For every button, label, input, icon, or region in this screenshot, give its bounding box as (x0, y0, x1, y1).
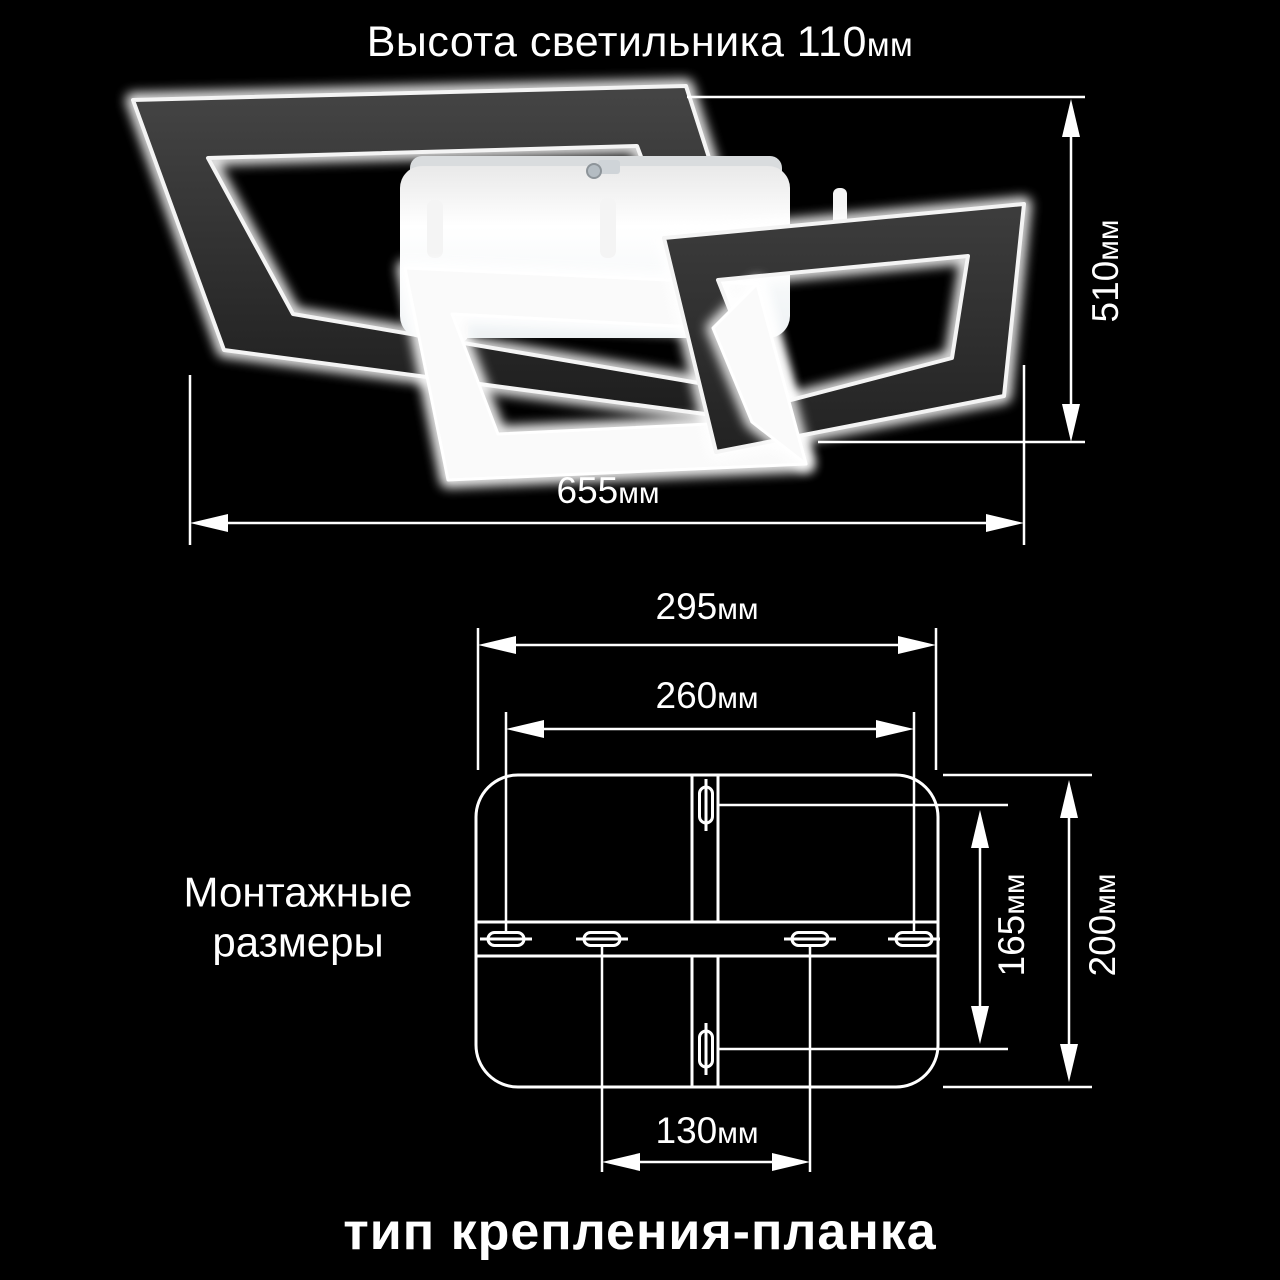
mount-screw (587, 164, 601, 178)
mount-type-caption: тип крепления-планка (0, 1202, 1280, 1262)
mounting-plate-drawing (476, 775, 940, 1087)
dim-200-label: 200мм (1082, 874, 1124, 977)
chandelier-illustration (133, 86, 1024, 480)
center-slots (700, 779, 713, 1075)
dim-260-label: 260мм (656, 675, 759, 717)
bar-slots (480, 933, 940, 946)
mounting-dimension-arrows (478, 636, 1078, 1171)
dim-height-label: 510мм (1085, 220, 1127, 323)
dim-130-label: 130мм (656, 1110, 759, 1152)
dim-165-label: 165мм (991, 874, 1033, 977)
mounting-heading: Монтажные размеры (184, 868, 413, 969)
dim-width-label: 655мм (557, 470, 660, 512)
page-title: Высота светильника 110мм (0, 18, 1280, 67)
diagram-canvas (0, 0, 1280, 1280)
dimension-diagram-page: Высота светильника 110мм 655мм 510мм Мон… (0, 0, 1280, 1280)
dim-295-label: 295мм (656, 586, 759, 628)
